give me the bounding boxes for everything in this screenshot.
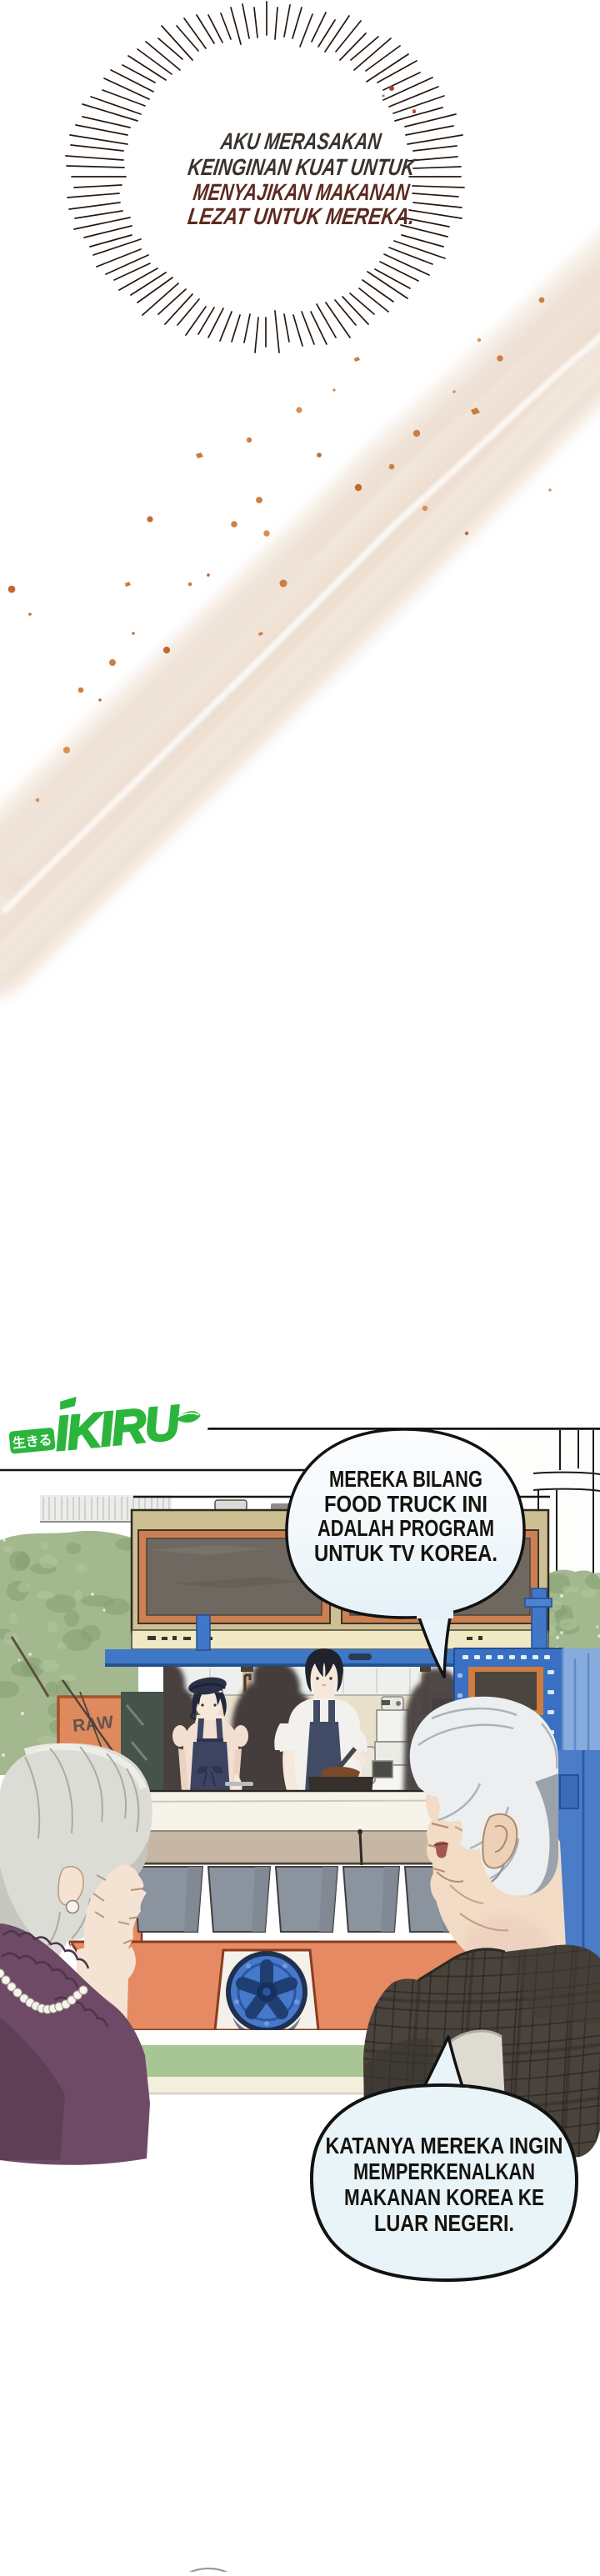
svg-text:AKU MERASAKAN: AKU MERASAKAN	[218, 128, 383, 154]
svg-text:MEMPERKENALKAN: MEMPERKENALKAN	[353, 2158, 535, 2184]
svg-text:MEREKA BILANG: MEREKA BILANG	[329, 1466, 482, 1492]
svg-text:UNTUK TV KOREA.: UNTUK TV KOREA.	[314, 1540, 497, 1566]
svg-text:MENYAJIKAN MAKANAN: MENYAJIKAN MAKANAN	[192, 179, 412, 205]
svg-text:LEZAT UNTUK MEREKA.: LEZAT UNTUK MEREKA.	[186, 203, 416, 229]
svg-text:LUAR NEGERI.: LUAR NEGERI.	[374, 2210, 514, 2236]
svg-text:KATANYA MEREKA INGIN: KATANYA MEREKA INGIN	[326, 2133, 563, 2158]
svg-text:MAKANAN KOREA KE: MAKANAN KOREA KE	[344, 2184, 544, 2210]
svg-text:ADALAH PROGRAM: ADALAH PROGRAM	[317, 1515, 494, 1541]
svg-text:KEINGINAN KUAT UNTUK: KEINGINAN KUAT UNTUK	[187, 154, 418, 180]
svg-text:FOOD TRUCK INI: FOOD TRUCK INI	[324, 1491, 487, 1517]
